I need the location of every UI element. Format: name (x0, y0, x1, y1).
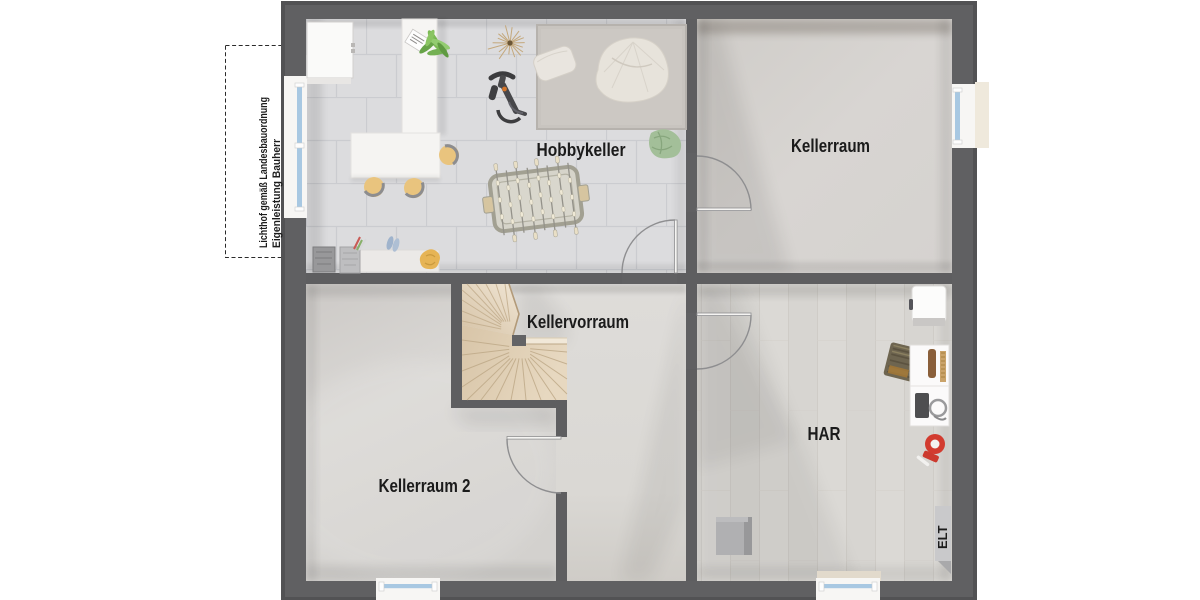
svg-text:HAR: HAR (808, 423, 841, 444)
svg-text:Kellerraum 2: Kellerraum 2 (379, 475, 471, 496)
svg-text:ELT: ELT (935, 525, 950, 549)
svg-text:Lichthof gemäß Landesbauordnun: Lichthof gemäß Landesbauordnung (258, 97, 270, 248)
svg-text:Eigenleistung Bauherr: Eigenleistung Bauherr (271, 138, 283, 248)
svg-text:Hobbykeller: Hobbykeller (537, 139, 626, 160)
svg-text:Kellerraum: Kellerraum (791, 135, 870, 156)
svg-text:Kellervorraum: Kellervorraum (527, 311, 629, 332)
